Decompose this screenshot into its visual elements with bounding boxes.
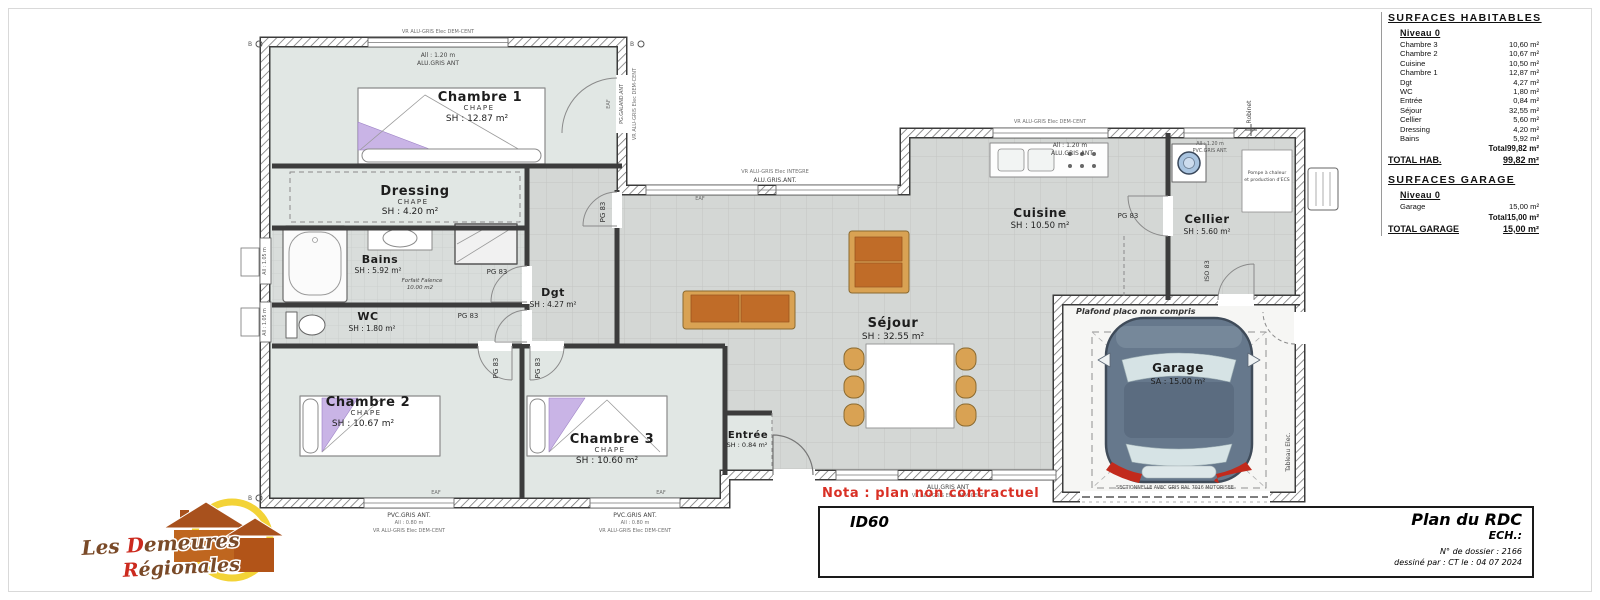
logo-text-les: Les [80,534,127,560]
label-bains-note2: 10.00 m2 [407,285,434,291]
heat-pump-label-2: et production d'ECS [1244,177,1290,183]
pg83-corridor: PG 83 [599,202,607,223]
iso83-cellier: ISO 83 [1203,260,1211,282]
section-marker-1: B [248,41,252,48]
row-label: Cuisine [1400,59,1425,68]
surface-row: Chambre 310,60 m² [1388,40,1539,49]
label-dgt-area: SH : 4.27 m² [529,300,576,309]
row-label: Chambre 2 [1400,49,1438,58]
label-bains-note1: Forfait Faïence [402,278,443,284]
label-chambre2: Chambre 2 [326,395,411,410]
surfaces-panel: SURFACES HABITABLES Niveau 0 Chambre 310… [1381,12,1539,236]
drawn-by: dessiné par : CT le : 04 07 2024 [1394,558,1522,567]
row-label: Dgt [1400,78,1412,87]
label-chambre3-area: SH : 10.60 m² [576,456,639,466]
all-label-bains: All : 1.05 m [262,247,268,275]
label-garage-note: Plafond placo non compris [1076,307,1196,316]
label-chambre3: Chambre 3 [570,432,655,447]
vr-label-pocket: VR ALU-GRIS Elec DEM-CENT [632,67,638,140]
label-garage: Garage [1152,361,1204,375]
row-label: Garage [1400,202,1425,211]
row-value: 4,27 m² [1513,78,1539,87]
surfaces-habitables-title: SURFACES HABITABLES [1388,12,1539,24]
logo-text-r: R [121,559,139,582]
label-cuisine: Cuisine [1013,206,1067,220]
garage-door-label: SECTIONNELLE AVEC GRIS RAL 7016 MOTORISE… [1116,485,1234,491]
row-value: 32,55 m² [1509,106,1539,115]
label-garage-area: SA : 15.00 m² [1151,377,1206,386]
row-value: 10,60 m² [1509,40,1539,49]
pg83-wc: PG 83 [458,312,479,320]
nota-disclaimer: Nota : plan non contractuel [822,486,1039,501]
label-cellier-area: SH : 5.60 m² [1183,227,1230,236]
garage-niveau-0-label: Niveau 0 [1400,190,1539,200]
logo-text-emeures: emeures [143,528,240,557]
garage-total-row: Total15,00 m² [1388,212,1539,223]
label-wc-area: SH : 1.80 m² [348,324,395,333]
total-garage-label: TOTAL GARAGE [1388,223,1459,236]
row-label: Cellier [1400,115,1422,124]
galand-label: PG.GALAND.ANT [619,84,625,124]
drawing-title: Plan du RDC [1394,511,1522,529]
pg83-chambre3: PG 83 [534,358,542,379]
exterior-unit [1308,168,1338,210]
label-dressing-area: SH : 4.20 m² [382,207,439,217]
surface-row: Chambre 210,67 m² [1388,49,1539,58]
window-chambre3-bottom [590,498,680,508]
row-value: 15,00 m² [1509,202,1539,211]
row-value: 10,67 m² [1509,49,1539,58]
row-value: 12,87 m² [1509,68,1539,77]
surface-row: Chambre 112,87 m² [1388,68,1539,77]
surface-row: Dressing4,20 m² [1388,125,1539,134]
niveau-0-label: Niveau 0 [1400,28,1539,38]
eaf-bay: EAF [695,196,705,202]
total-garage-value: 15,00 m² [1503,223,1539,236]
corridor-tiles [527,166,617,346]
window-cuisine-top [993,128,1108,138]
surface-row: Dgt4,27 m² [1388,78,1539,87]
all-label-cellier: All : 1.20 m [1196,141,1224,147]
pg83-bains: PG 83 [487,268,508,276]
label-chambre2-area: SH : 10.67 m² [332,419,395,429]
surface-row: Cuisine10,50 m² [1388,59,1539,68]
alu-label-ch1: ALU.GRIS ANT [417,60,459,67]
company-logo: Les Demeures Régionales [80,496,290,592]
vr-label-bay: VR ALU-GRIS Elec INTEGRE [741,169,809,175]
dining-table [844,344,976,428]
surface-row: Cellier5,60 m² [1388,115,1539,124]
heat-pump-box: Pompe à chaleur et production d'ECS [1242,150,1292,212]
total-row: Total99,82 m² [1388,143,1539,154]
pg83-chambre2: PG 83 [492,358,500,379]
eaf-ch1: EAF [606,99,612,109]
row-label: Bains [1400,134,1419,143]
row-label: WC [1400,87,1413,96]
all-label-ch2: All : 0.80 m [395,520,424,526]
surface-row: Entrée0,84 m² [1388,96,1539,105]
row-value: 5,92 m² [1513,134,1539,143]
all-label-ch3: All : 0.80 m [621,520,650,526]
total-hab-value: 99,82 m² [1503,154,1539,167]
total-garage-row: TOTAL GARAGE15,00 m² [1388,223,1539,236]
row-value: 0,84 m² [1513,96,1539,105]
car-top-view [1092,318,1266,488]
alu-label-bay: ALU.GRIS.ANT. [753,177,796,184]
pvc-label-cellier: PVC.GRIS ANT. [1193,148,1228,154]
eaf-ch3: EAF [656,490,666,496]
window-chambre2-bottom [364,498,454,508]
project-reference: ID60 [850,513,889,531]
label-dressing: Dressing [380,184,449,199]
sofa-three-seat [683,291,795,329]
label-bains: Bains [362,253,398,266]
label-chambre3-sub: CHAPE [594,446,625,454]
garage-total-label: Total [1488,213,1507,222]
row-value: 10,50 m² [1509,59,1539,68]
row-label: Entrée [1400,96,1422,105]
surface-row: Garage15,00 m² [1388,202,1539,211]
section-marker-2: B [630,41,634,48]
garage-total-value: 15,00 m² [1507,213,1539,222]
vr-label-ch1: VR ALU-GRIS Elec DEM-CENT [402,29,475,35]
label-dressing-sub: CHAPE [397,198,428,206]
row-label: Chambre 3 [1400,40,1438,49]
total-label: Total [1488,144,1507,153]
label-chambre1-area: SH : 12.87 m² [446,114,509,124]
total-hab-row: TOTAL HAB.99,82 m² [1388,154,1539,167]
row-value: 5,60 m² [1513,115,1539,124]
total-value: 99,82 m² [1507,144,1539,153]
label-cuisine-area: SH : 10.50 m² [1011,221,1070,231]
vr-label-ch2: VR ALU-GRIS Elec DEM-CENT [373,528,446,534]
label-cellier: Cellier [1184,212,1229,226]
row-label: Dressing [1400,125,1430,134]
vr-label-cuisine: VR ALU-GRIS Elec DEM-CENT [1014,119,1087,125]
window-cellier-top [1184,128,1234,138]
label-chambre2-sub: CHAPE [350,409,381,417]
surface-row: WC1,80 m² [1388,87,1539,96]
kitchen-counter [990,143,1108,177]
label-sejour: Séjour [868,316,919,331]
dossier-number: N° de dossier : 2166 [1394,547,1522,556]
row-label: Chambre 1 [1400,68,1438,77]
window-chambre1-top [368,38,508,47]
row-value: 4,20 m² [1513,125,1539,134]
pg83-cuisine: PG 83 [1118,212,1139,220]
label-wc: WC [357,310,378,323]
alu-label-cuisine: ALU.GRIS ANT [1051,150,1093,157]
title-block: ID60 Plan du RDC ECH.: N° de dossier : 2… [818,506,1534,578]
all-label-ch1: All : 1.20 m [421,52,456,59]
pvc-label-ch3: PVC.GRIS ANT. [613,512,657,519]
surface-row: Séjour32,55 m² [1388,106,1539,115]
label-sejour-area: SH : 32.55 m² [862,332,925,342]
pvc-label-ch2: PVC.GRIS ANT. [387,512,431,519]
logo-text: Les Demeures Régionales [80,528,241,584]
plan-sheet: Pompe à chaleur et production d'ECS [0,0,1600,600]
window-sejour-bottom-2 [992,470,1056,480]
total-hab-label: TOTAL HAB. [1388,154,1442,167]
window-sejour-bottom-1 [836,470,898,480]
tableau-elec-label: Tableau Elec. [1285,432,1292,472]
all-label-cuisine: All : 1.20 m [1053,142,1088,149]
robinet-label: Robinet [1246,100,1253,124]
logo-text-d: D [125,533,145,558]
label-bains-area: SH : 5.92 m² [354,266,401,275]
label-chambre1: Chambre 1 [438,90,523,105]
label-entree-area: SH : 0.84 m² [727,441,768,449]
heat-pump-label-1: Pompe à chaleur [1248,169,1287,176]
row-value: 1,80 m² [1513,87,1539,96]
vr-label-ch3: VR ALU-GRIS Elec DEM-CENT [599,528,672,534]
eaf-ch2: EAF [431,490,441,496]
label-dgt: Dgt [541,286,565,299]
sofa-loveseat [849,231,909,293]
all-label-wc: All : 1.05 m [262,308,268,336]
surface-row: Bains5,92 m² [1388,134,1539,143]
row-label: Séjour [1400,106,1422,115]
bathtub [283,226,347,302]
scale-label: ECH.: [1394,529,1522,542]
label-entree: Entrée [728,429,768,441]
surfaces-garage-title: SURFACES GARAGE [1388,174,1539,186]
title-block-right: Plan du RDC ECH.: N° de dossier : 2166 d… [1394,511,1522,567]
label-chambre1-sub: CHAPE [463,104,494,112]
